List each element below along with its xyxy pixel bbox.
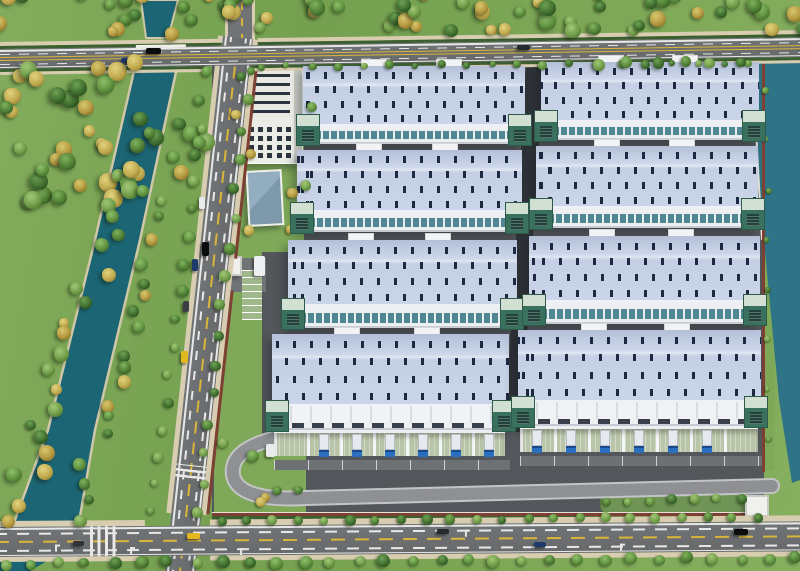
tree	[765, 23, 778, 36]
tree	[539, 0, 556, 16]
tree	[84, 125, 96, 137]
tree	[135, 0, 150, 3]
tree	[137, 185, 149, 197]
tree	[0, 16, 7, 30]
tree	[79, 558, 89, 568]
tree	[133, 112, 148, 127]
tree	[16, 0, 30, 3]
tree	[39, 445, 55, 461]
tree	[273, 486, 282, 495]
tree	[70, 79, 87, 96]
tree	[34, 430, 47, 443]
tree	[513, 60, 520, 67]
tree	[235, 154, 246, 165]
tree	[76, 0, 89, 1]
tree	[168, 151, 180, 163]
tree	[361, 63, 368, 70]
tree	[98, 140, 113, 155]
tree	[787, 6, 800, 22]
tree	[85, 495, 94, 504]
tree	[696, 60, 702, 66]
tree	[565, 59, 573, 67]
tree	[192, 507, 203, 518]
stair-tower-window	[296, 218, 308, 230]
tree	[247, 450, 259, 462]
tree	[243, 94, 254, 105]
tree	[377, 554, 390, 567]
tree	[397, 515, 406, 524]
tree	[193, 558, 203, 568]
tree	[646, 497, 655, 506]
tree	[258, 64, 265, 71]
tree	[74, 179, 88, 193]
tree	[106, 210, 119, 223]
tree	[79, 296, 92, 309]
tree	[95, 238, 109, 252]
tree	[409, 556, 419, 566]
tree	[54, 346, 69, 361]
tree	[764, 237, 769, 242]
aerial-industrial-park-render	[0, 0, 800, 571]
tree	[681, 56, 691, 66]
stair-tower-east	[500, 298, 524, 330]
tree	[232, 214, 241, 223]
tree	[765, 386, 770, 391]
tree	[119, 350, 131, 362]
tree	[102, 268, 116, 282]
tree	[193, 136, 206, 149]
tree	[324, 557, 335, 568]
stair-tower-west	[529, 198, 553, 230]
tree	[422, 514, 433, 525]
tree	[202, 66, 212, 76]
tree	[624, 498, 632, 506]
tree	[140, 290, 151, 301]
tree	[214, 331, 224, 341]
stair-tower-window	[287, 314, 299, 326]
tree	[165, 27, 179, 41]
tree	[334, 63, 342, 71]
tree	[178, 1, 190, 13]
tree	[595, 1, 606, 12]
tree	[144, 127, 155, 138]
tree	[204, 0, 215, 2]
tree	[487, 555, 500, 568]
tree	[385, 60, 394, 69]
tree	[764, 336, 771, 343]
tree	[118, 375, 131, 388]
tree	[14, 142, 27, 155]
tree	[645, 0, 658, 9]
stair-tower-east	[744, 396, 768, 428]
tree	[12, 499, 26, 513]
tree	[70, 282, 83, 295]
tree	[160, 555, 172, 567]
tree	[739, 555, 749, 565]
stair-tower-west	[290, 202, 314, 234]
tree	[178, 259, 190, 271]
tree	[736, 58, 745, 67]
tree	[716, 6, 727, 17]
tree	[397, 0, 411, 12]
stair-tower-east	[508, 114, 532, 146]
tree	[641, 60, 650, 69]
tree	[625, 513, 635, 523]
tree	[202, 420, 212, 430]
tree	[762, 87, 769, 94]
tree	[309, 63, 317, 71]
tree	[171, 315, 180, 324]
tree	[153, 452, 164, 463]
tree	[218, 438, 228, 448]
tree	[745, 60, 752, 67]
tree	[237, 72, 246, 81]
stair-tower-east	[743, 294, 767, 326]
tree	[135, 258, 148, 271]
tree	[123, 161, 140, 178]
tree	[157, 196, 167, 206]
tree	[42, 363, 55, 376]
tree	[704, 58, 715, 69]
tree	[445, 24, 458, 37]
tree	[625, 552, 637, 564]
tree	[572, 554, 584, 566]
tree	[2, 515, 15, 528]
tree	[515, 6, 526, 17]
tree	[194, 95, 205, 106]
tree	[457, 0, 470, 9]
tree	[189, 149, 201, 161]
stair-tower-window	[506, 314, 518, 326]
tree	[147, 507, 155, 515]
tree	[766, 188, 772, 194]
tree	[588, 22, 602, 36]
tree	[463, 62, 470, 69]
stair-tower-west	[522, 294, 546, 326]
tree	[707, 553, 718, 564]
tree	[797, 23, 800, 36]
tree	[601, 512, 611, 522]
tree	[219, 270, 231, 282]
stair-tower-west	[281, 298, 305, 330]
stair-tower-east	[505, 202, 529, 234]
tree	[97, 76, 115, 94]
tree	[565, 23, 581, 39]
tree	[59, 153, 76, 170]
tree	[593, 59, 605, 71]
tree	[726, 0, 740, 9]
tree	[26, 420, 36, 430]
tree	[133, 321, 146, 334]
stair-tower-window	[498, 416, 510, 428]
tree	[294, 486, 303, 495]
tree	[91, 61, 106, 76]
tree	[54, 557, 64, 567]
stair-tower-west	[511, 396, 535, 428]
tree	[765, 287, 771, 293]
tree	[464, 554, 474, 564]
tree	[301, 180, 311, 190]
tree	[765, 554, 776, 565]
tree	[747, 0, 762, 13]
tree	[320, 517, 328, 525]
tree	[246, 149, 256, 159]
stair-tower-window	[511, 218, 523, 230]
tree	[210, 361, 220, 371]
tree	[621, 56, 632, 67]
tree	[307, 102, 317, 112]
tree	[104, 429, 113, 438]
stair-tower-window	[748, 126, 760, 138]
tree	[653, 57, 665, 69]
tree	[222, 5, 236, 19]
tree	[727, 513, 736, 522]
tree	[224, 243, 236, 255]
tree	[681, 551, 693, 563]
tree	[244, 225, 255, 236]
tree	[256, 497, 266, 507]
tree	[237, 127, 246, 136]
tree	[766, 437, 771, 442]
tree	[108, 26, 118, 36]
tree	[438, 60, 446, 68]
tree	[210, 388, 219, 397]
tree	[655, 555, 665, 565]
stair-tower-window	[750, 412, 762, 424]
tree	[412, 63, 418, 69]
tree	[146, 233, 159, 246]
tree	[603, 498, 611, 506]
tree	[184, 231, 196, 243]
tree	[112, 229, 125, 242]
tree	[789, 551, 800, 563]
stair-tower-window	[514, 130, 526, 142]
tree	[0, 101, 13, 114]
tree	[333, 1, 345, 13]
trees-layer	[0, 0, 800, 571]
tree	[200, 480, 209, 489]
tree	[155, 211, 165, 221]
tree	[247, 67, 255, 75]
tree	[438, 555, 448, 565]
tree	[267, 515, 277, 525]
tree	[186, 14, 197, 25]
tree	[214, 299, 225, 310]
tree	[1, 560, 12, 571]
tree	[669, 60, 675, 66]
stair-tower-window	[528, 310, 540, 322]
tree	[158, 426, 168, 436]
tree	[110, 557, 122, 569]
tree	[73, 458, 86, 471]
tree	[538, 61, 546, 69]
tree	[294, 516, 303, 525]
tree	[164, 398, 174, 408]
stair-tower-west	[296, 114, 320, 146]
stair-tower-window	[535, 214, 547, 226]
tree	[692, 7, 704, 19]
tree	[345, 515, 356, 526]
tree	[177, 285, 189, 297]
tree	[218, 517, 227, 526]
tree	[105, 0, 116, 10]
tree	[199, 448, 208, 457]
tree	[245, 557, 256, 568]
tree	[37, 464, 53, 480]
tree	[498, 516, 506, 524]
tree	[270, 557, 282, 569]
tree	[151, 479, 159, 487]
tree	[722, 61, 728, 67]
tree	[127, 54, 144, 71]
tree	[309, 0, 325, 16]
tree	[499, 23, 511, 35]
tree	[600, 555, 611, 566]
stair-tower-window	[302, 130, 314, 142]
stair-tower-west	[265, 400, 289, 432]
tree	[242, 516, 250, 524]
tree	[79, 478, 90, 489]
tree	[650, 513, 661, 524]
tree	[173, 118, 185, 130]
tree	[188, 204, 197, 213]
tree	[283, 62, 289, 68]
tree	[29, 71, 44, 86]
tree	[445, 514, 456, 525]
stair-tower-window	[271, 416, 283, 428]
tree	[634, 20, 645, 31]
tree	[242, 0, 254, 5]
tree	[104, 411, 113, 420]
tree	[754, 513, 764, 523]
tree	[690, 494, 700, 504]
tree	[650, 11, 666, 27]
tree	[130, 138, 145, 153]
stair-tower-window	[749, 310, 761, 322]
tree	[171, 343, 180, 352]
tree	[188, 175, 200, 187]
tree	[163, 370, 172, 379]
tree	[371, 516, 379, 524]
tree	[48, 402, 63, 417]
tree	[78, 100, 93, 115]
tree	[52, 190, 67, 205]
tree	[419, 0, 430, 1]
tree	[475, 1, 488, 14]
tree	[517, 556, 527, 566]
stair-tower-west	[534, 110, 558, 142]
tree	[287, 188, 297, 198]
stair-tower-window	[747, 214, 759, 226]
tree	[667, 494, 677, 504]
tree	[231, 110, 240, 119]
stair-tower-window	[517, 412, 529, 424]
tree	[51, 384, 62, 395]
tree	[356, 556, 366, 566]
tree	[738, 494, 748, 504]
tree	[36, 163, 49, 176]
tree	[704, 512, 713, 521]
tree	[1, 0, 16, 5]
tree	[119, 361, 132, 374]
tree	[712, 494, 720, 502]
tree	[545, 555, 555, 565]
tree	[486, 25, 497, 36]
tree	[26, 560, 36, 570]
tree	[174, 165, 189, 180]
tree	[139, 279, 150, 290]
tree	[74, 515, 86, 527]
tree	[255, 22, 266, 33]
tree	[300, 556, 312, 568]
stair-tower-east	[742, 110, 766, 142]
tree	[473, 515, 482, 524]
tree	[576, 513, 585, 522]
tree	[24, 191, 42, 209]
tree	[57, 326, 71, 340]
tree	[525, 514, 534, 523]
tree	[217, 555, 230, 568]
tree	[136, 556, 148, 568]
tree	[228, 183, 240, 195]
tree	[490, 61, 496, 67]
tree	[128, 305, 140, 317]
stair-tower-window	[540, 126, 552, 138]
tree	[678, 513, 687, 522]
tree	[119, 0, 133, 8]
tree	[549, 514, 558, 523]
stair-tower-east	[741, 198, 765, 230]
tree	[6, 467, 22, 483]
